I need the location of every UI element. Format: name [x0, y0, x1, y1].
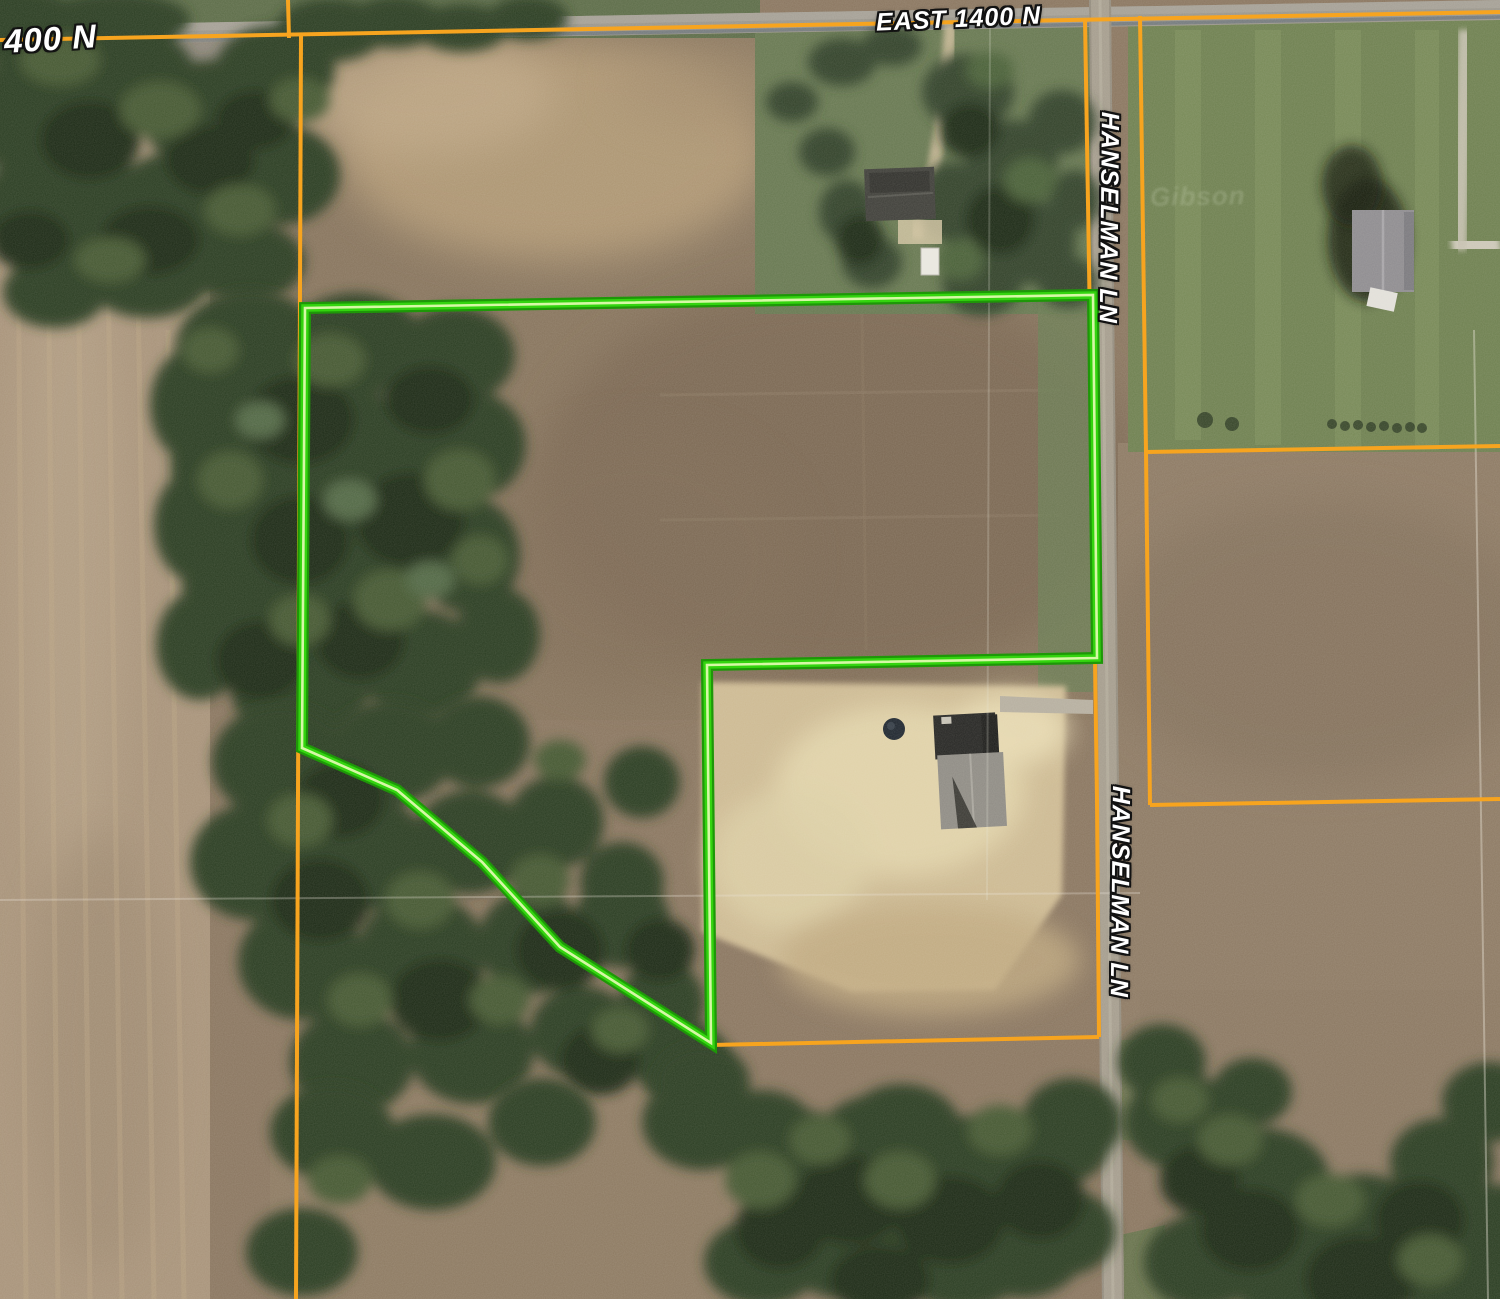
road-label-400n: 400 N — [3, 17, 98, 61]
parcel-line-stub-north — [288, 0, 289, 38]
ghost-owner-text: Gibson — [1150, 180, 1246, 213]
satellite-imagery — [0, 0, 1500, 1299]
road-label-hanselman-ln-lower: HANSELMAN LN — [1104, 786, 1135, 998]
satellite-map-view[interactable]: 400 N EAST 1400 N HANSELMAN LN HANSELMAN… — [0, 0, 1500, 1299]
image-grain — [0, 0, 1500, 1299]
road-label-hanselman-ln-upper: HANSELMAN LN — [1093, 112, 1124, 324]
